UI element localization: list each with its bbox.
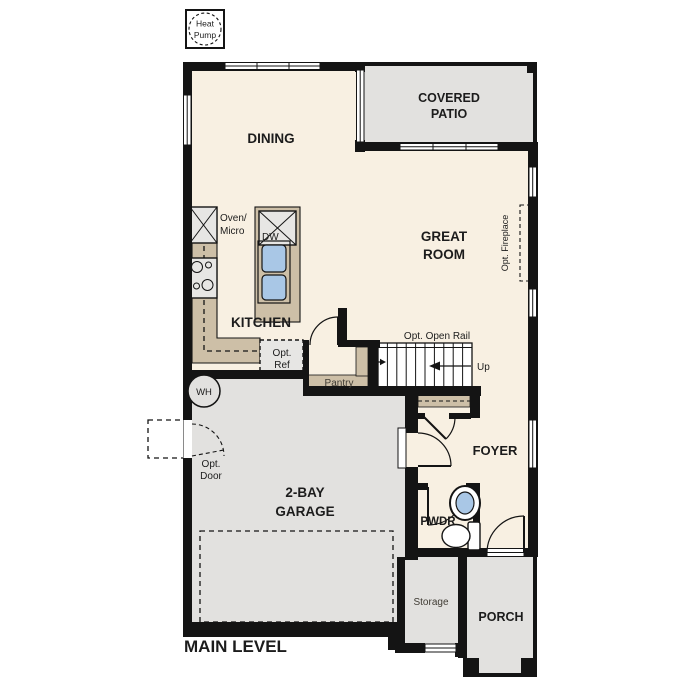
pantry-side-shelf (356, 347, 368, 376)
wall-segment (303, 340, 309, 391)
pantry-label: Pantry (325, 378, 354, 389)
sink-bowl (262, 275, 286, 300)
wall-segment (397, 557, 405, 650)
kitchen-label: KITCHEN (231, 315, 291, 330)
wall-segment (368, 343, 378, 391)
great-room-label-1: GREAT (421, 229, 468, 244)
storage-label: Storage (413, 597, 448, 608)
powder-sink-bowl (456, 492, 474, 514)
wall-segment (405, 467, 418, 560)
sink-bowl (262, 245, 286, 272)
wall-segment (338, 308, 347, 347)
opt-fireplace-label: Opt. Fireplace (500, 215, 510, 272)
water-heater-symbol: WH (188, 375, 220, 407)
covered-patio-label-2: PATIO (431, 107, 468, 121)
wall-segment (418, 483, 428, 490)
foyer-label: FOYER (473, 443, 518, 458)
main-level-title: MAIN LEVEL (184, 637, 287, 656)
opt-ref-label-1: Opt. (273, 348, 292, 359)
opt-door-dashed-stoop (148, 420, 184, 458)
floor-plan-page: Heat Pump WH Opt. Fireplace DINING COVER… (0, 0, 687, 687)
water-heater-label: WH (196, 387, 212, 398)
opt-ref-label-2: Ref (274, 360, 290, 371)
great-room-label-2: ROOM (423, 247, 465, 262)
oven-micro-label-1: Oven/ (220, 213, 247, 224)
dining-label: DINING (247, 131, 294, 146)
porch-post (521, 658, 537, 674)
wall-segment (533, 63, 537, 146)
dishwasher-label: DW (262, 232, 279, 243)
wall-segment (360, 62, 537, 66)
wall-segment (395, 643, 425, 653)
wall-segment (458, 552, 467, 658)
porch-post (463, 658, 479, 674)
up-label: Up (477, 362, 490, 373)
heat-pump-label-1: Heat (196, 19, 215, 29)
garage-label-2: GARAGE (275, 504, 334, 519)
wall-segment (470, 388, 480, 418)
oven-micro-label-2: Micro (220, 226, 245, 237)
garage-label-1: 2-BAY (285, 485, 324, 500)
coat-closet (418, 395, 470, 407)
garage-entry-step (398, 428, 406, 468)
floor-plan-drawing: Heat Pump WH Opt. Fireplace DINING COVER… (0, 0, 687, 687)
wall-segment (183, 622, 395, 637)
opt-door-label-1: Opt. (202, 459, 221, 470)
wall-segment (183, 62, 192, 637)
opt-open-rail-label: Opt. Open Rail (404, 331, 470, 342)
heat-pump-box (186, 10, 224, 48)
pwdr-label: PWDR (420, 516, 456, 528)
heat-pump-label-2: Pump (194, 30, 216, 40)
wall-segment (524, 548, 538, 557)
staircase (374, 343, 472, 389)
opt-door-label-2: Door (200, 471, 222, 482)
heat-pump-symbol: Heat Pump (186, 10, 224, 48)
covered-patio-label-1: COVERED (418, 91, 480, 105)
cooktop (190, 258, 217, 298)
porch-label: PORCH (478, 610, 523, 624)
wall-segment (405, 388, 418, 433)
opt-door-opening (184, 420, 193, 458)
wall-segment (449, 413, 471, 419)
